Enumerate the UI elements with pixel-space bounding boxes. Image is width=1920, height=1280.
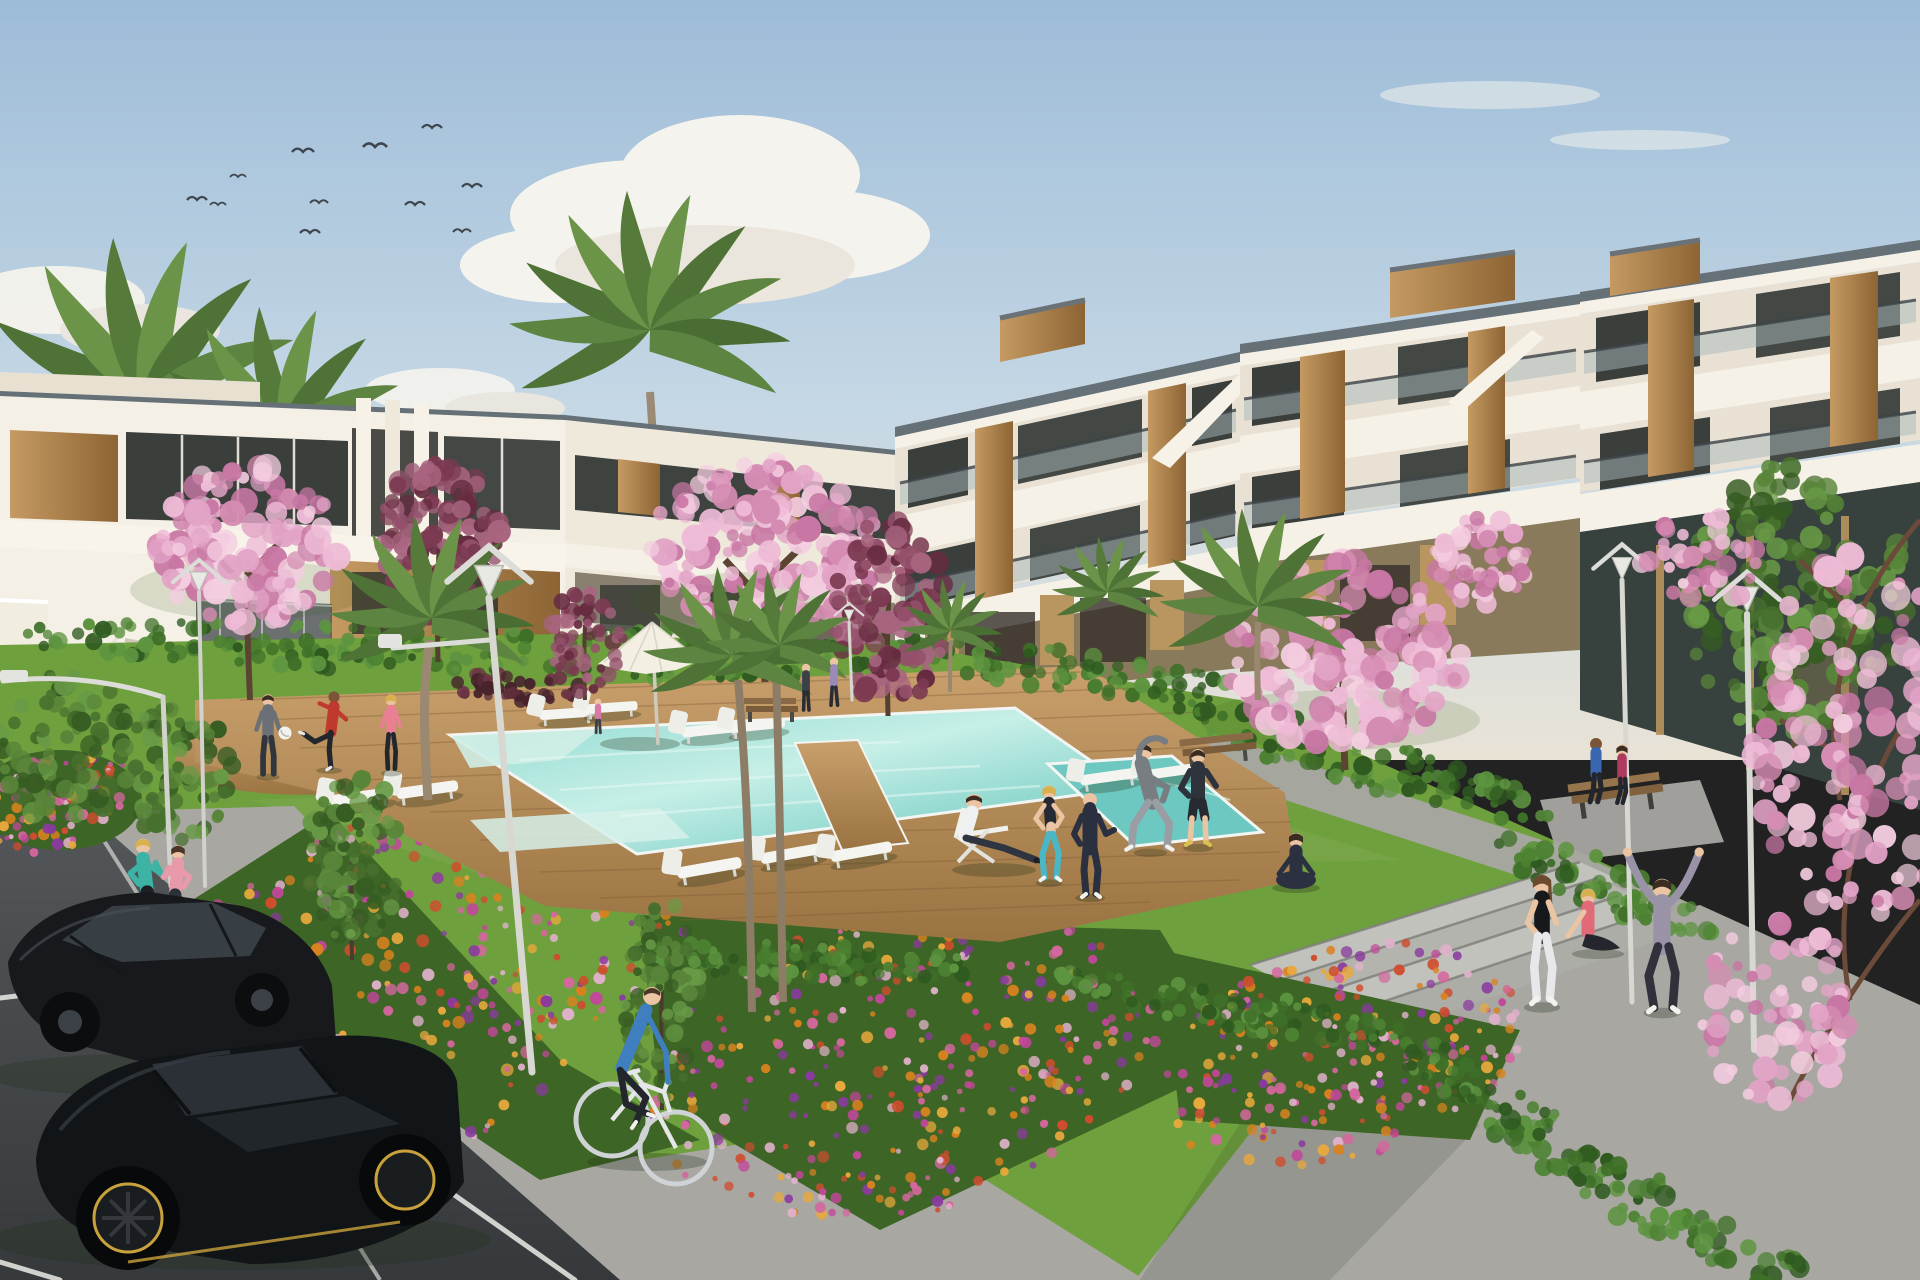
render-viewport [0,0,1920,1280]
person-bench-man [1590,738,1602,802]
architectural-render-scene [0,0,1920,1280]
football [279,727,292,740]
